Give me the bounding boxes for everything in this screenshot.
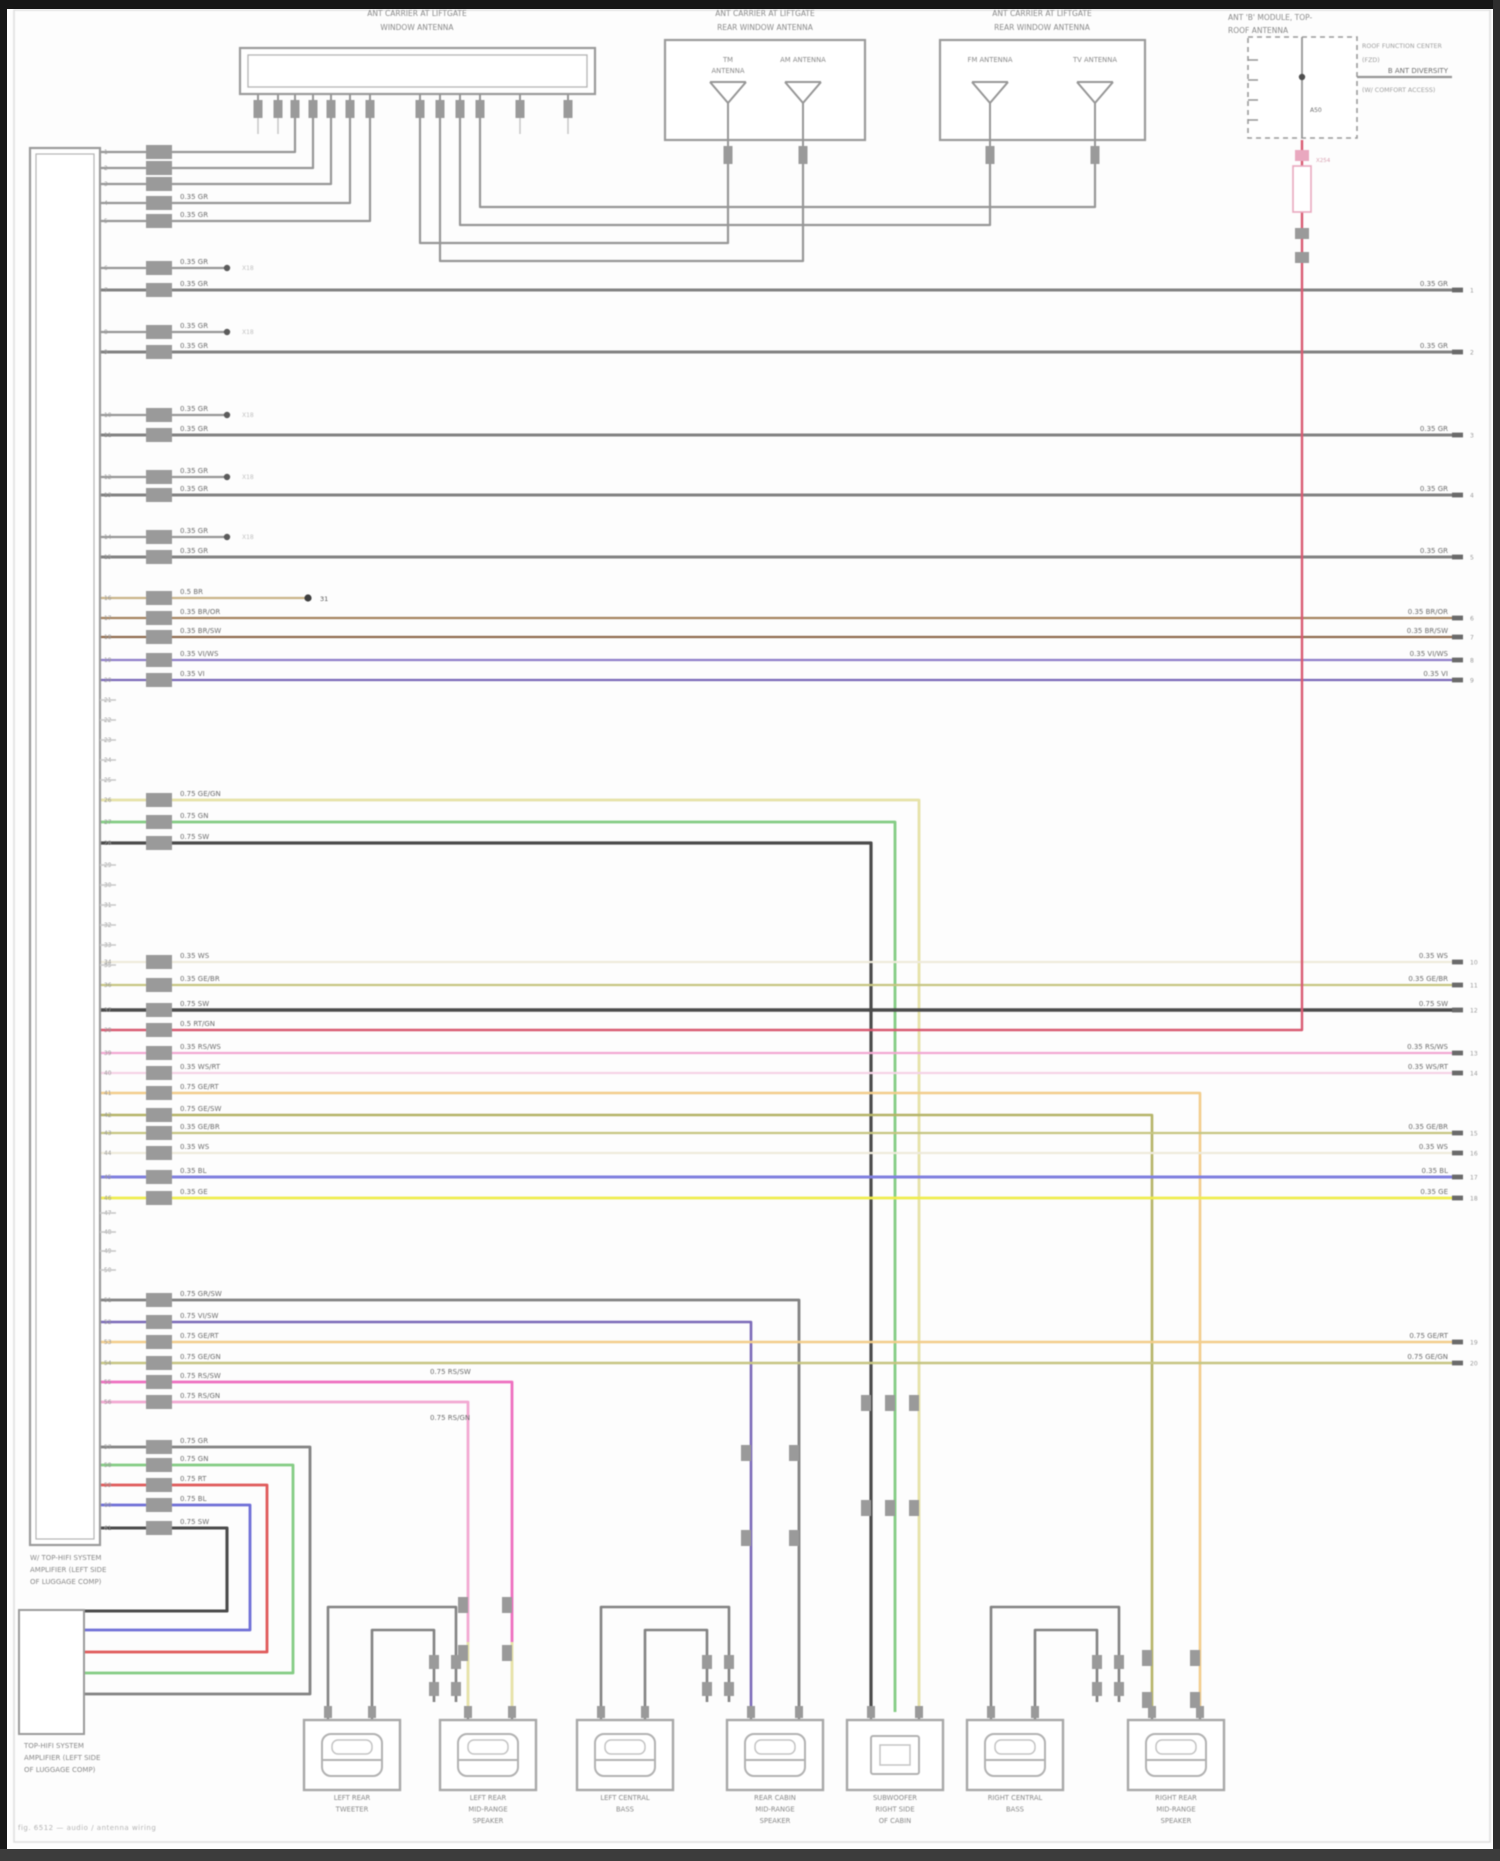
loop-connector [702, 1682, 712, 1696]
amp-pin-number: 31 [104, 903, 112, 909]
speaker-pin-connector [1031, 1706, 1039, 1718]
amp-pin-number: 42 [104, 1113, 112, 1119]
pin-connector [346, 100, 355, 118]
wire-splice-connector [146, 530, 172, 544]
loop-connector [429, 1682, 439, 1696]
inline-connector [458, 1597, 468, 1613]
wire-color-label: 0.35 BL [180, 1167, 207, 1175]
wire-splice-connector [146, 550, 172, 564]
amp-pin-number: 26 [104, 798, 112, 804]
wire [100, 822, 895, 1712]
wire-splice-connector [146, 408, 172, 422]
inline-connector [885, 1395, 895, 1411]
ground-dot [304, 594, 311, 601]
wire-color-label: 0.75 SW [180, 1518, 209, 1526]
right-pin-number: 20 [1470, 1361, 1478, 1368]
right-edge-pin [1452, 1071, 1463, 1076]
inline-connector [909, 1395, 919, 1411]
amp-pin-number: 2 [104, 166, 108, 172]
wire-end-ref: X18 [242, 329, 254, 336]
wire-splice-connector [146, 1293, 172, 1307]
inline-connector [861, 1500, 871, 1516]
right-edge-pin [1452, 1008, 1463, 1013]
speaker-pin-connector [1148, 1706, 1156, 1718]
amp-pin-number: 33 [104, 943, 112, 949]
right-edge-pin [1452, 1175, 1463, 1180]
inline-connector [909, 1500, 919, 1516]
red-line-ref: X254 [1316, 158, 1331, 164]
ant-box-c-title: ANT CARRIER AT LIFTGATE [992, 9, 1092, 18]
inline-connector [1295, 228, 1309, 239]
wire-color-label: 0.35 GE [180, 1188, 208, 1196]
right-edge-pin [1452, 616, 1463, 621]
wire-splice-connector [146, 653, 172, 667]
wire-color-label-right: 0.35 WS [1419, 952, 1449, 960]
module-side-note: ROOF FUNCTION CENTER [1362, 43, 1443, 50]
wire-color-label-right: 0.35 GE/BR [1408, 1123, 1448, 1131]
inline-connector [741, 1445, 751, 1461]
wire-splice-connector [146, 488, 172, 502]
amp-pin-number: 41 [104, 1091, 112, 1097]
right-edge-pin [1452, 983, 1463, 988]
amp-pin-number: 3 [104, 182, 108, 188]
wire-color-label: 0.35 GR [180, 485, 208, 493]
wire-color-label: 0.35 GR [180, 322, 208, 330]
right-edge-pin [1452, 555, 1463, 560]
wire-splice-connector [146, 815, 172, 829]
speaker-label-line: LEFT REAR [470, 1794, 507, 1802]
inline-connector [1190, 1692, 1200, 1708]
wire-color-label: 0.35 BR/SW [180, 627, 221, 635]
amp-pin-number: 36 [104, 983, 112, 989]
wire-color-label: 0.35 GR [180, 342, 208, 350]
loop-connector [1114, 1655, 1124, 1669]
wire-color-label-right: 0.35 WS/RT [1408, 1063, 1449, 1071]
right-edge-pin [1452, 1340, 1463, 1345]
loop-connector [702, 1655, 712, 1669]
right-edge-pin [1452, 635, 1463, 640]
pin-connector [309, 100, 318, 118]
ant-box-a-title: ANT CARRIER AT LIFTGATE [367, 9, 467, 18]
wire-splice-connector [146, 428, 172, 442]
pin-connector [986, 146, 995, 164]
inline-connector [789, 1530, 799, 1546]
amp-pin-number: 8 [104, 330, 108, 336]
amp-pin-number: 58 [104, 1463, 112, 1469]
wire-splice-connector [146, 1170, 172, 1184]
wire-splice-connector [146, 1066, 172, 1080]
wire-splice-connector [146, 1356, 172, 1370]
right-pin-number: 13 [1470, 1051, 1478, 1058]
wire-color-label: 0.5 BR [180, 588, 203, 596]
inline-connector [789, 1445, 799, 1461]
speaker-label-line: LEFT REAR [334, 1794, 371, 1802]
wire-color-label: 0.5 RT/GN [180, 1020, 215, 1028]
sub-amp-caption-line: TOP-HIFI SYSTEM [23, 1742, 84, 1750]
amp-pin-number: 55 [104, 1380, 112, 1386]
amp-pin-number: 45 [104, 1175, 112, 1181]
wire-color-label-right: 0.35 BR/OR [1408, 608, 1448, 616]
wire-color-label: 0.75 GE/RT [180, 1332, 219, 1340]
pin-connector [274, 100, 283, 118]
wire-color-label-right: 0.35 GE [1420, 1188, 1448, 1196]
ground-label: 31 [320, 595, 328, 603]
wire-color-label-right: 0.35 GE/BR [1408, 975, 1448, 983]
wire-color-label: 0.75 GR [180, 1437, 208, 1445]
wire-splice-connector [146, 1003, 172, 1017]
right-edge-pin [1452, 1361, 1463, 1366]
ant-box-c-title: REAR WINDOW ANTENNA [994, 23, 1091, 32]
wire-splice-connector [146, 1126, 172, 1140]
speaker-label-line: OF CABIN [879, 1817, 912, 1825]
wire [100, 1115, 1152, 1712]
amp-pin-number: 54 [104, 1361, 112, 1367]
subwoofer-symbol [871, 1736, 919, 1774]
amp-pin-number: 53 [104, 1340, 112, 1346]
wire-splice-connector [146, 1335, 172, 1349]
wire-color-label: 0.35 GE/BR [180, 1123, 220, 1131]
wire-splice-connector [146, 1498, 172, 1512]
speaker-pin-connector [641, 1706, 649, 1718]
speaker-pin-connector [795, 1706, 803, 1718]
speaker-wire-loop [372, 1630, 434, 1712]
amp-caption-line: AMPLIFIER (LEFT SIDE [30, 1566, 106, 1574]
speaker-label-line: TWEETER [335, 1806, 369, 1814]
amp-pin-number: 20 [104, 678, 112, 684]
amp-pin-number: 6 [104, 266, 108, 272]
amp-pin-number: 43 [104, 1131, 112, 1137]
wiring-diagram-canvas: 0.35 GR0.35 GR0.35 GRX180.35 GR0.35 GR10… [0, 0, 1500, 1861]
speaker-pin-connector [987, 1706, 995, 1718]
right-edge-pin [1452, 960, 1463, 965]
wire-splice-connector [146, 978, 172, 992]
wire-splice-connector [146, 1458, 172, 1472]
wire-color-label: 0.75 RS/GN [180, 1392, 220, 1400]
wire-end-dot [224, 265, 230, 271]
wire-splice-connector [146, 1086, 172, 1100]
loop-connector [451, 1682, 461, 1696]
amp-caption-line: OF LUGGAGE COMP) [30, 1578, 102, 1586]
right-pin-number: 6 [1470, 616, 1474, 623]
amp-pin-number: 18 [104, 635, 112, 641]
wire-color-label: 0.35 RS/WS [180, 1043, 221, 1051]
right-edge-pin [1452, 678, 1463, 683]
wire-splice-connector [146, 325, 172, 339]
speaker-pin-connector [597, 1706, 605, 1718]
scan-edge-right [1493, 0, 1500, 1861]
inline-connector [502, 1597, 512, 1613]
wire-splice-connector [146, 196, 172, 210]
amp-pin-number: 46 [104, 1196, 112, 1202]
wire-mid-label: 0.75 RS/GN [430, 1414, 470, 1422]
wire-color-label: 0.35 VI/WS [180, 650, 219, 658]
amp-pin-number: 27 [104, 820, 112, 826]
right-edge-pin [1452, 288, 1463, 293]
right-pin-number: 19 [1470, 1340, 1478, 1347]
amp-pin-number: 47 [104, 1211, 112, 1217]
amp-pin-number: 21 [104, 698, 112, 704]
speaker-pin-connector [867, 1706, 875, 1718]
scan-edge-top [0, 0, 1500, 9]
antenna-label: FM ANTENNA [968, 56, 1013, 64]
right-edge-pin [1452, 493, 1463, 498]
amp-pin-number: 16 [104, 596, 112, 602]
ant-box-c [940, 40, 1145, 140]
amp-pin-number: 22 [104, 718, 112, 724]
wire-splice-connector [146, 283, 172, 297]
speaker-pin-connector [915, 1706, 923, 1718]
right-edge-pin [1452, 350, 1463, 355]
right-pin-number: 3 [1470, 433, 1474, 440]
speaker-label-line: BASS [616, 1806, 634, 1814]
ant-box-b-title: REAR WINDOW ANTENNA [717, 23, 814, 32]
right-pin-number: 18 [1470, 1196, 1478, 1203]
wire-end-dot [224, 329, 230, 335]
wire-splice-connector [146, 955, 172, 969]
wire-splice-connector [146, 793, 172, 807]
ant-box-a-title: WINDOW ANTENNA [380, 23, 454, 32]
wire-splice-connector [146, 261, 172, 275]
wire-splice-connector [146, 1191, 172, 1205]
amp-pin-number: 14 [104, 535, 112, 541]
wire-color-label: 0.75 GN [180, 1455, 208, 1463]
wire-color-label-right: 0.35 GR [1420, 280, 1448, 288]
amp-pin-number: 35 [104, 963, 112, 969]
amp-pin-number: 38 [104, 1028, 112, 1034]
page-watermark: fig. 6512 — audio / antenna wiring [18, 1824, 156, 1832]
wire-splice-connector [146, 1375, 172, 1389]
right-pin-number: 5 [1470, 555, 1474, 562]
ant-box-b-title: ANT CARRIER AT LIFTGATE [715, 9, 815, 18]
wire-color-label: 0.35 VI [180, 670, 205, 678]
inline-connector [1295, 252, 1309, 263]
wire-splice-connector [146, 1395, 172, 1409]
wire-splice-connector [146, 1108, 172, 1122]
speaker-label-line: BASS [1006, 1806, 1024, 1814]
wire-color-label: 0.35 GR [180, 467, 208, 475]
speaker-label-line: SPEAKER [760, 1817, 791, 1825]
scan-edge-bottom [0, 1849, 1500, 1861]
right-pin-number: 2 [1470, 350, 1474, 357]
right-edge-pin [1452, 433, 1463, 438]
ant-module-d-title: ANT 'B' MODULE, TOP- [1228, 13, 1313, 22]
right-edge-pin [1452, 1196, 1463, 1201]
wire-color-label: 0.75 GE/RT [180, 1083, 219, 1091]
amp-pin-number: 61 [104, 1526, 112, 1532]
wire-splice-connector [146, 1440, 172, 1454]
pin-connector [366, 100, 375, 118]
inline-connector [1295, 150, 1309, 161]
amp-caption-line: W/ TOP-HIFI SYSTEM [30, 1554, 101, 1562]
speaker-label-line: SPEAKER [473, 1817, 504, 1825]
speaker-pin-connector [508, 1706, 516, 1718]
amp-pin-number: 7 [104, 288, 108, 294]
wire-color-label: 0.75 RS/SW [180, 1372, 221, 1380]
wire-color-label-right: 0.35 GR [1420, 425, 1448, 433]
amp-pin-number: 17 [104, 616, 112, 622]
wire-color-label: 0.75 GE/SW [180, 1105, 221, 1113]
wire-color-label: 0.75 RT [180, 1475, 207, 1483]
amp-pin-number: 23 [104, 738, 112, 744]
amp-pin-number: 11 [104, 433, 112, 439]
right-edge-pin [1452, 658, 1463, 663]
wire-color-label: 0.75 GN [180, 812, 208, 820]
loop-connector [429, 1655, 439, 1669]
sub-amplifier-box [19, 1610, 84, 1734]
wire-color-label: 0.75 SW [180, 1000, 209, 1008]
inline-connector [861, 1395, 871, 1411]
speaker-label-line: MID-RANGE [1156, 1806, 1195, 1814]
wire [84, 1485, 267, 1652]
amp-pin-number: 39 [104, 1051, 112, 1057]
right-pin-number: 7 [1470, 635, 1474, 642]
ant-module-d-title: ROOF ANTENNA [1228, 26, 1289, 35]
wire-color-label-right: 0.35 BL [1421, 1167, 1448, 1175]
wire-color-label: 0.75 GE/GN [180, 1353, 221, 1361]
inline-connector [1293, 166, 1311, 212]
wire-color-label: 0.35 GR [180, 405, 208, 413]
right-pin-number: 14 [1470, 1071, 1478, 1078]
inline-connector [1142, 1692, 1152, 1708]
amp-pin-number: 12 [104, 475, 112, 481]
wire-color-label: 0.35 GR [180, 547, 208, 555]
amp-pin-number: 13 [104, 493, 112, 499]
amp-pin-number: 59 [104, 1483, 112, 1489]
loop-connector [1114, 1682, 1124, 1696]
wire [100, 800, 919, 1712]
wire [100, 1322, 751, 1712]
wire-color-label: 0.35 WS [180, 1143, 210, 1151]
loop-connector [724, 1655, 734, 1669]
speaker-label-line: SPEAKER [1161, 1817, 1192, 1825]
inline-connector [502, 1645, 512, 1661]
module-terminal-dot [1299, 74, 1305, 80]
wire-end-dot [224, 474, 230, 480]
speaker-label-line: REAR CABIN [754, 1794, 796, 1802]
wire-color-label-right: 0.35 WS [1419, 1143, 1449, 1151]
amp-pin-number: 48 [104, 1230, 112, 1236]
wire-color-label-right: 0.35 GR [1420, 547, 1448, 555]
speaker-label-line: SUBWOOFER [873, 1794, 917, 1802]
amp-pin-number: 28 [104, 841, 112, 847]
wire-splice-connector [146, 1146, 172, 1160]
wire-color-label: 0.75 SW [180, 833, 209, 841]
speaker-label-line: RIGHT CENTRAL [988, 1794, 1043, 1802]
amp-pin-number: 4 [104, 201, 108, 207]
wire-color-label-right: 0.75 GE/GN [1407, 1353, 1448, 1361]
wire-splice-connector [146, 470, 172, 484]
inline-connector [741, 1530, 751, 1546]
wire-splice-connector [146, 177, 172, 191]
pin-connector [436, 100, 445, 118]
wire-color-label: 0.75 GE/GN [180, 790, 221, 798]
wire-splice-connector [146, 1023, 172, 1037]
pin-connector [1091, 146, 1100, 164]
pin-connector [516, 100, 525, 118]
scanned-wiring-diagram-page: 0.35 GR0.35 GR0.35 GRX180.35 GR0.35 GR10… [0, 0, 1500, 1861]
speaker-label-line: LEFT CENTRAL [600, 1794, 650, 1802]
amp-pin-number: 19 [104, 658, 112, 664]
wire-end-ref: X18 [242, 412, 254, 419]
wire-color-label-right: 0.35 GR [1420, 342, 1448, 350]
wire-color-label-right: 0.35 VI [1423, 670, 1448, 678]
speaker-pin-connector [464, 1706, 472, 1718]
inline-connector [1190, 1650, 1200, 1666]
radio-connector-box [30, 148, 100, 1545]
wire-splice-connector [146, 214, 172, 228]
right-edge-pin [1452, 1051, 1463, 1056]
pin-connector [799, 146, 808, 164]
wire-color-label: 0.35 GR [180, 193, 208, 201]
pin-connector [476, 100, 485, 118]
wire-splice-connector [146, 611, 172, 625]
wire-color-label: 0.35 BR/OR [180, 608, 220, 616]
amp-pin-number: 9 [104, 350, 108, 356]
speaker-label-line: MID-RANGE [468, 1806, 507, 1814]
wire-color-label: 0.35 GR [180, 211, 208, 219]
speaker-pin-connector [1196, 1706, 1204, 1718]
amp-pin-number: 50 [104, 1268, 112, 1274]
right-pin-number: 10 [1470, 960, 1478, 967]
antenna-label: AM ANTENNA [780, 56, 826, 64]
wire-mid-label: 0.75 RS/SW [430, 1368, 471, 1376]
amp-pin-number: 1 [104, 150, 108, 156]
scan-edge-left [0, 0, 7, 1861]
wire-color-label-right: B ANT DIVERSITY [1388, 67, 1449, 75]
loop-connector [724, 1682, 734, 1696]
inline-connector [458, 1645, 468, 1661]
right-pin-number: 16 [1470, 1151, 1478, 1158]
antenna-label: TV ANTENNA [1072, 56, 1117, 64]
wire-splice-connector [146, 345, 172, 359]
amp-pin-number: 5 [104, 219, 108, 225]
wire-end-ref: X18 [242, 265, 254, 272]
wire-end-ref: X18 [242, 474, 254, 481]
speaker-label-line: RIGHT SIDE [875, 1806, 914, 1814]
amp-pin-number: 57 [104, 1445, 112, 1451]
wire-splice-connector [146, 630, 172, 644]
pin-connector [327, 100, 336, 118]
antenna-label: ANTENNA [712, 67, 745, 75]
inline-connector [1142, 1650, 1152, 1666]
wire-color-label: 0.35 GE/BR [180, 975, 220, 983]
wire-color-label: 0.35 WS [180, 952, 210, 960]
wire [100, 99, 295, 152]
module-tag: A50 [1310, 107, 1322, 114]
wire-splice-connector [146, 836, 172, 850]
amp-pin-number: 52 [104, 1320, 112, 1326]
right-edge-pin [1452, 1151, 1463, 1156]
right-pin-number: 9 [1470, 678, 1474, 685]
wire-color-label-right: 0.35 RS/WS [1407, 1043, 1448, 1051]
amp-pin-number: 32 [104, 923, 112, 929]
wire-color-label: 0.75 VI/SW [180, 1312, 218, 1320]
right-edge-pin [1452, 1131, 1463, 1136]
amp-pin-number: 40 [104, 1071, 112, 1077]
amp-pin-number: 49 [104, 1249, 112, 1255]
right-pin-number: 15 [1470, 1131, 1478, 1138]
wire-splice-connector [146, 673, 172, 687]
wire-color-label: 0.35 GR [180, 280, 208, 288]
module-side-note: (FZD) [1362, 57, 1380, 64]
speaker-pin-connector [324, 1706, 332, 1718]
wire [100, 843, 871, 1712]
wire-splice-connector [146, 1046, 172, 1060]
wire-end-dot [224, 534, 230, 540]
pin-connector [564, 100, 573, 118]
speaker-label-line: MID-RANGE [755, 1806, 794, 1814]
wire-color-label-right: 0.75 SW [1419, 1000, 1448, 1008]
